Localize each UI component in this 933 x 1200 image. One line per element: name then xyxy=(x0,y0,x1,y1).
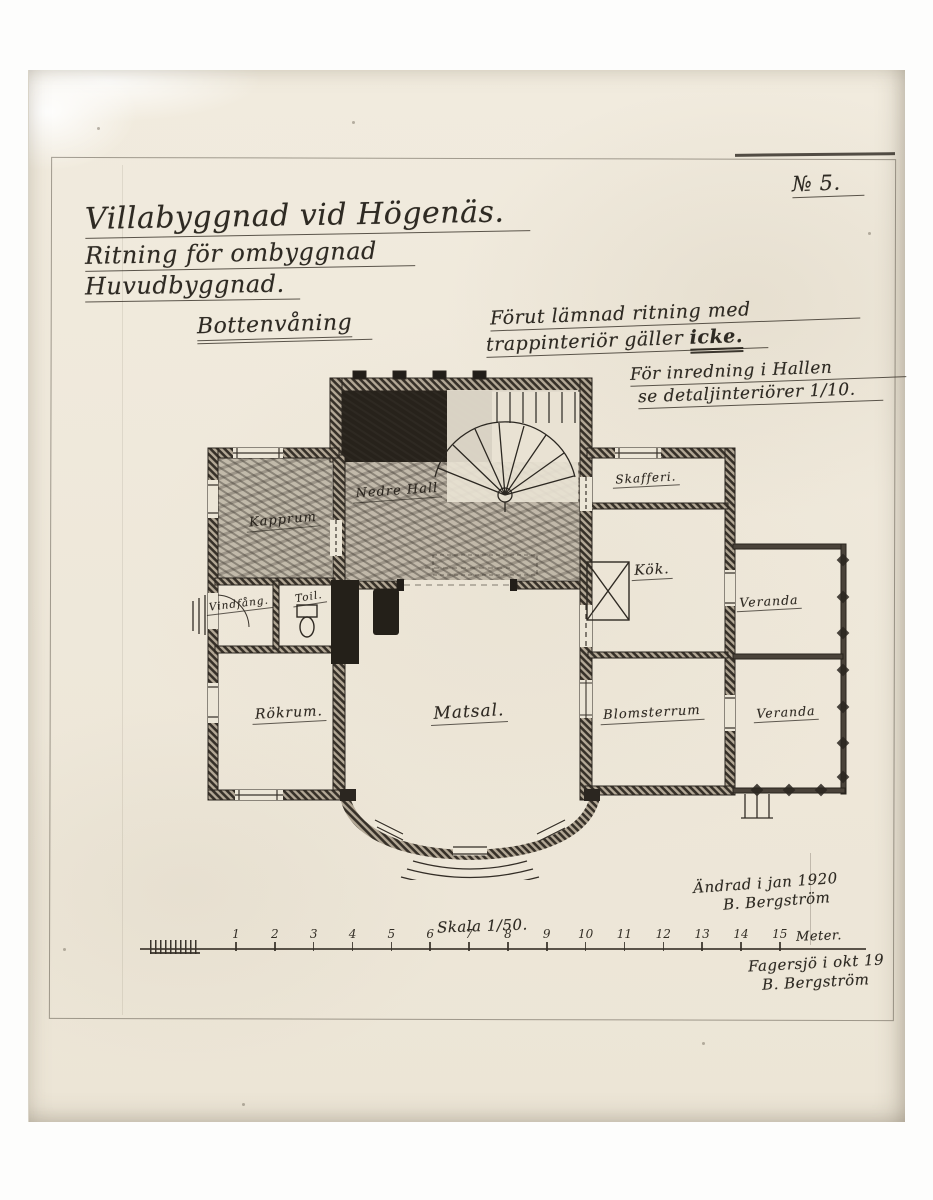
emphasized-word: icke. xyxy=(689,325,743,354)
room-label-matsal: Matsal. xyxy=(430,700,508,726)
dust-speck xyxy=(352,121,355,124)
scale-number: 14 xyxy=(733,928,749,951)
scale-number: 8 xyxy=(500,928,516,951)
photographed-drawing: № 5. Villabyggnad vid Högenäs. Ritning f… xyxy=(0,0,933,1200)
room-label-veranda-upper: Veranda xyxy=(736,592,802,612)
scale-numbers: 123456789101112131415 xyxy=(228,928,788,951)
dust-speck xyxy=(242,1103,245,1106)
scale-number: 2 xyxy=(267,928,283,951)
bow-window-wall xyxy=(340,789,600,855)
scale-number: 13 xyxy=(694,928,710,951)
room-label-veranda-lower: Veranda xyxy=(753,703,819,723)
room-label-rokrum: Rökrum. xyxy=(252,703,327,725)
scale-unit: Meter. xyxy=(796,928,842,945)
room-label-kok: Kök. xyxy=(631,561,673,581)
title-line-3: Huvudbyggnad. xyxy=(85,270,300,303)
scale-number: 12 xyxy=(655,928,671,951)
scale-number: 5 xyxy=(383,928,399,951)
steps xyxy=(193,595,773,880)
scale-number: 6 xyxy=(422,928,438,951)
scale-bar-subdivided-meter xyxy=(150,940,200,954)
floor-plan-drawing xyxy=(185,365,870,880)
scale-number: 4 xyxy=(345,928,361,951)
scale-number: 1 xyxy=(228,928,244,951)
veranda-posts xyxy=(751,554,850,797)
spiral-staircase xyxy=(435,390,578,512)
scale-number: 3 xyxy=(306,928,322,951)
scale-number: 10 xyxy=(578,928,594,951)
drawing-number: № 5. xyxy=(792,170,865,198)
floor-label: Bottenvåning xyxy=(197,310,373,345)
dust-speck xyxy=(702,1042,705,1045)
dust-speck xyxy=(97,127,100,130)
title-line-1: Villabyggnad vid Högenäs. xyxy=(85,194,531,239)
scale-number: 15 xyxy=(772,928,788,951)
title-line-2: Ritning för ombyggnad xyxy=(85,236,415,272)
scale-number: 11 xyxy=(616,928,632,951)
scale-number: 9 xyxy=(539,928,555,951)
scale-number: 7 xyxy=(461,928,477,951)
dust-speck xyxy=(63,948,66,951)
dust-speck xyxy=(868,232,871,235)
